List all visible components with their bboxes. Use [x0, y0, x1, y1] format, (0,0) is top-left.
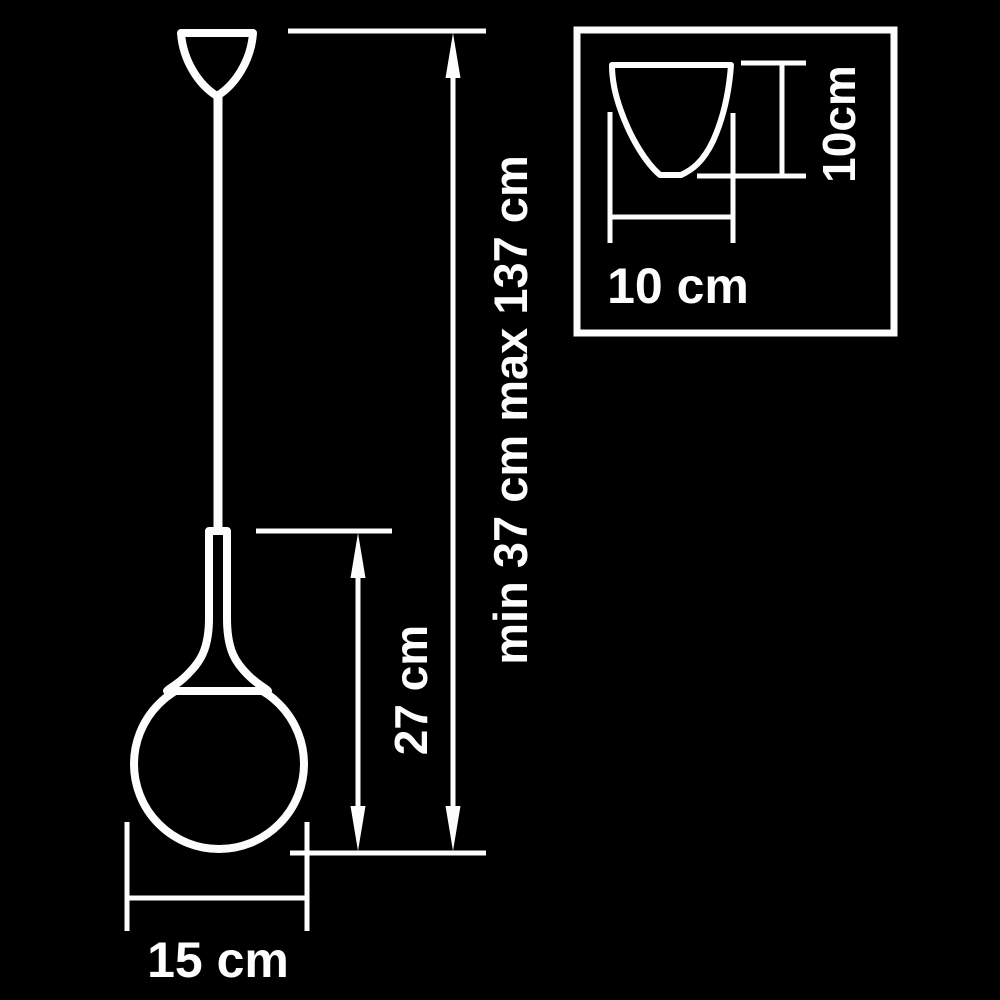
pendant-lamp-dimension-diagram: min 37 cm max 137 cm 27 cm 15 cm — [0, 0, 1000, 1000]
arrow-up-icon — [446, 33, 461, 78]
shade-diameter-label: 15 cm — [147, 932, 289, 988]
detail-inset: 10 cm 10cm — [577, 30, 894, 333]
ceiling-canopy-icon — [181, 33, 253, 96]
diagram-canvas: min 37 cm max 137 cm 27 cm 15 cm — [0, 0, 1000, 1000]
body-height-label: 27 cm — [385, 625, 437, 755]
arrow-down-icon — [446, 806, 461, 851]
detail-height-label: 10cm — [813, 65, 865, 183]
detail-width-label: 10 cm — [607, 258, 749, 314]
pendant-lamp-drawing — [134, 33, 304, 849]
shade-profile-drawing — [612, 65, 731, 175]
arrow-up-icon — [351, 533, 366, 578]
arrow-down-icon — [351, 806, 366, 851]
globe-shade — [134, 679, 304, 849]
lamp-neck-funnel — [167, 531, 268, 691]
overall-height-label: min 37 cm max 137 cm — [484, 155, 537, 664]
